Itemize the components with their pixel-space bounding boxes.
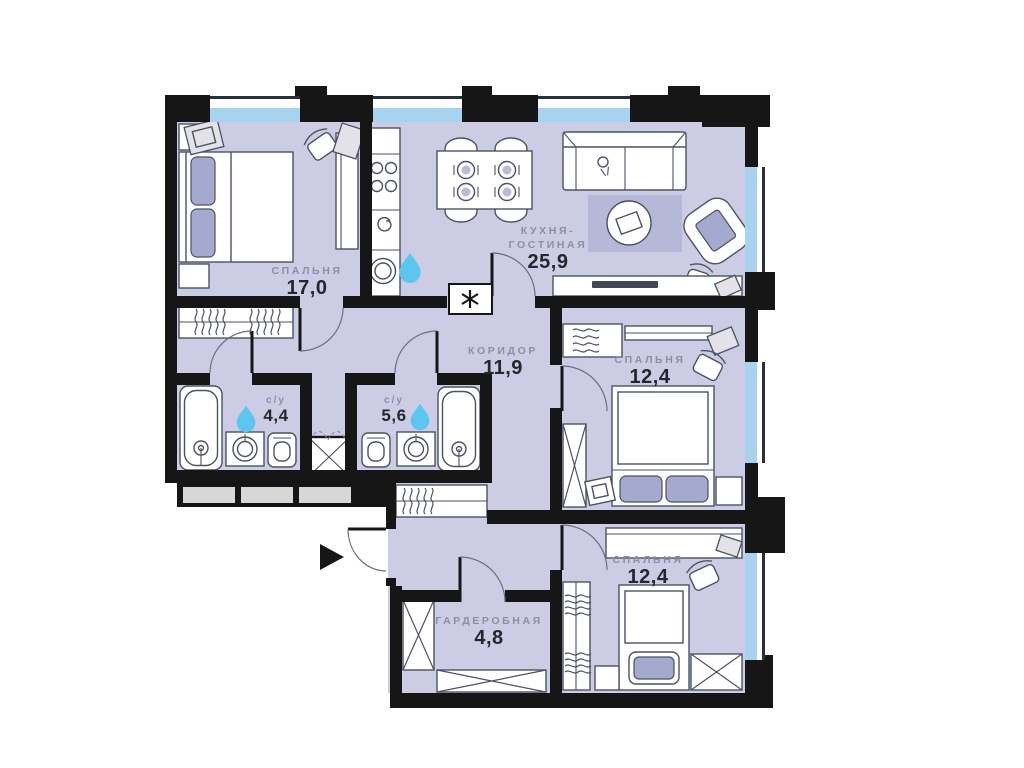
sink <box>226 432 264 466</box>
nightstand <box>179 264 209 288</box>
window <box>745 553 765 660</box>
nightstand <box>716 477 742 505</box>
pillow <box>666 476 708 502</box>
pillow <box>620 476 662 502</box>
window <box>210 96 300 122</box>
bathtub <box>438 387 480 471</box>
nightstand <box>595 666 619 690</box>
wardrobe <box>563 424 586 507</box>
nightstand <box>585 477 615 506</box>
wardrobe <box>403 600 434 670</box>
floor-plan-drawing <box>0 0 1024 768</box>
floor-plan-canvas: СПАЛЬНЯ 17,0 КУХНЯ- ГОСТИНАЯ 25,9 КОРИДО… <box>0 0 1024 768</box>
wall-panel <box>183 487 235 503</box>
bookshelf <box>563 582 591 690</box>
wardrobe-closet <box>179 307 293 338</box>
pillow <box>191 209 215 257</box>
tv-stand <box>553 276 742 296</box>
tv <box>592 281 658 288</box>
wall-panel <box>299 487 351 503</box>
dresser <box>563 324 622 357</box>
window <box>373 96 462 122</box>
toilet <box>268 433 296 467</box>
hall-closet <box>396 485 487 517</box>
toilet <box>362 433 390 467</box>
window <box>745 362 765 463</box>
dining-table <box>437 138 532 222</box>
double-bed <box>612 386 714 506</box>
pillow <box>634 657 674 679</box>
pillow <box>191 157 215 205</box>
window <box>538 96 630 122</box>
wall-panel <box>241 487 293 503</box>
sink <box>397 432 435 466</box>
single-bed <box>619 585 689 690</box>
wardrobe <box>691 654 742 690</box>
double-bed <box>179 152 293 262</box>
drawer-unit <box>437 670 546 692</box>
coffee-table <box>607 201 651 245</box>
washing-machine-niche <box>449 284 492 314</box>
sofa <box>563 132 686 190</box>
window <box>745 167 765 272</box>
bathtub <box>180 386 222 470</box>
